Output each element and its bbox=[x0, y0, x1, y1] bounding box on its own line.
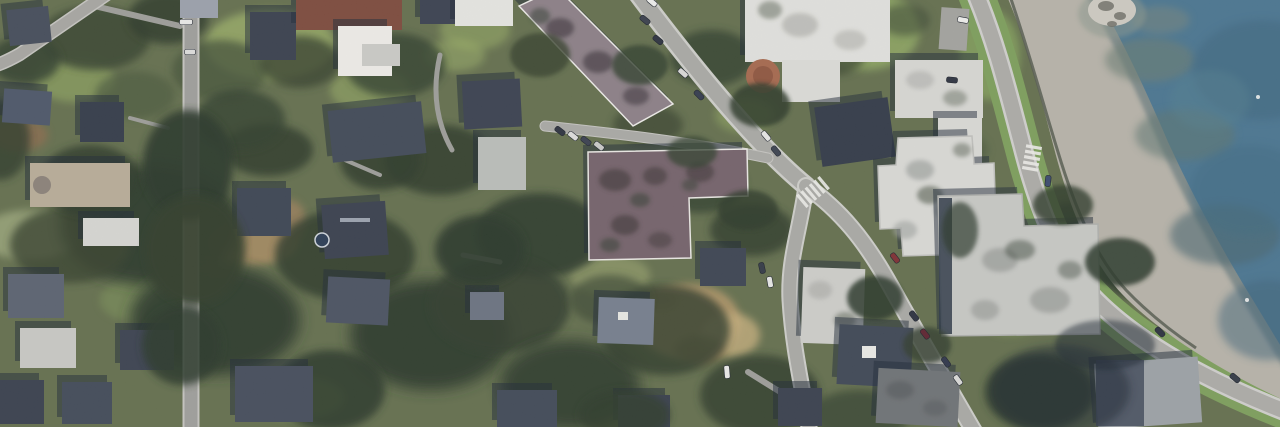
image-grain bbox=[0, 0, 1280, 427]
aerial-imagery bbox=[0, 0, 1280, 427]
satellite-map-canvas[interactable] bbox=[0, 0, 1280, 427]
scene-layers bbox=[0, 0, 1280, 427]
